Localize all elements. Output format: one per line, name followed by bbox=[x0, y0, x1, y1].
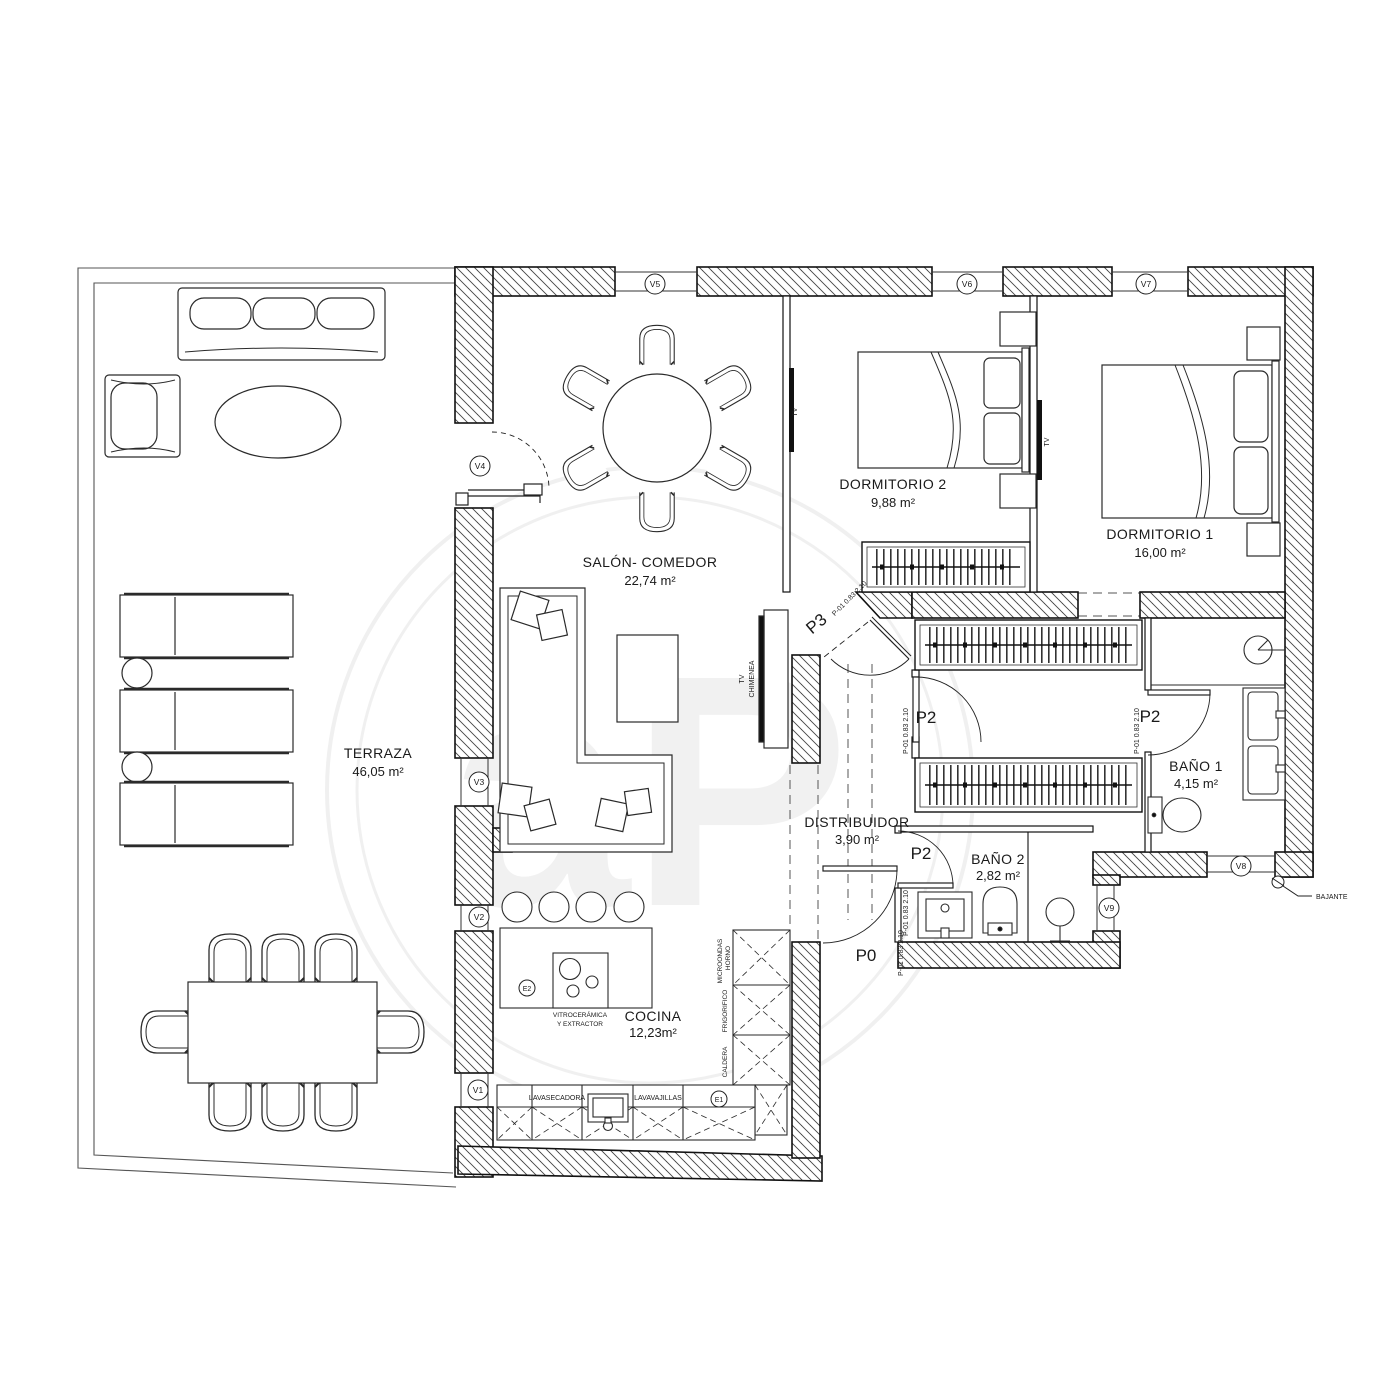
side-table bbox=[122, 752, 152, 782]
svg-text:V2: V2 bbox=[474, 912, 485, 922]
pillow bbox=[1234, 371, 1268, 442]
svg-text:V8: V8 bbox=[1236, 861, 1247, 871]
bar-stool bbox=[614, 892, 644, 922]
tap bbox=[1276, 711, 1285, 718]
bar-stool bbox=[502, 892, 532, 922]
svg-text:E2: E2 bbox=[523, 986, 532, 993]
tv-icon bbox=[1037, 400, 1042, 480]
window-badge-v2: V2 bbox=[469, 907, 489, 927]
room-area-cocina: 12,23m² bbox=[629, 1025, 677, 1040]
window-badge-v7: V7 bbox=[1136, 274, 1156, 294]
sink bbox=[918, 892, 972, 938]
svg-text:V5: V5 bbox=[650, 279, 661, 289]
shower-head-icon bbox=[1244, 636, 1285, 664]
room-area-salon: 22,74 m² bbox=[624, 573, 676, 588]
tv-chimenea-unit bbox=[759, 610, 788, 748]
svg-text:V7: V7 bbox=[1141, 279, 1152, 289]
window-badge-v9: V9 bbox=[1099, 898, 1119, 918]
window-badge-v5: V5 bbox=[645, 274, 665, 294]
nightstand bbox=[1000, 312, 1036, 346]
window-badge-v3: V3 bbox=[469, 772, 489, 792]
round-dining-table bbox=[558, 325, 755, 531]
svg-text:V3: V3 bbox=[474, 777, 485, 787]
wardrobes bbox=[862, 542, 1142, 812]
terraza-furniture bbox=[105, 288, 424, 1131]
bajante-callout: BAJANTE bbox=[1272, 876, 1348, 901]
dim-p0: P-01 0.83 2.10 bbox=[898, 930, 905, 976]
room-label-terraza: TERRAZA bbox=[344, 745, 412, 761]
room-area-bano2: 2,82 m² bbox=[976, 868, 1021, 883]
room-label-cocina: COCINA bbox=[625, 1008, 682, 1024]
tall-cabinet bbox=[733, 930, 790, 1085]
svg-text:V1: V1 bbox=[473, 1085, 484, 1095]
bano1-fixtures bbox=[1148, 636, 1285, 833]
room-label-distribuidor: DISTRIBUIDOR bbox=[804, 814, 909, 830]
chimenea-label: CHIMENEA bbox=[749, 660, 756, 697]
vitroceramica-label-1: VITROCERÁMICA bbox=[553, 1010, 608, 1019]
nightstand bbox=[1247, 327, 1280, 360]
room-area-dormitorio1: 16,00 m² bbox=[1134, 545, 1186, 560]
dim-p2-hall: P-01 0.83 2.10 bbox=[903, 708, 910, 754]
wardrobe-distribuidor bbox=[915, 758, 1142, 812]
bar-stool bbox=[539, 892, 569, 922]
oval-table bbox=[215, 386, 341, 458]
vitroceramica-label-2: Y EXTRACTOR bbox=[557, 1021, 603, 1028]
frigorifico-label: FRIGORIFICO bbox=[722, 990, 729, 1033]
tv-label-dorm1: TV bbox=[1044, 437, 1051, 446]
sun-lounger bbox=[120, 782, 293, 846]
room-label-bano2: BAÑO 2 bbox=[971, 851, 1025, 867]
coffee-table bbox=[617, 635, 678, 722]
corner-cabinet bbox=[755, 1085, 787, 1135]
room-area-distribuidor: 3,90 m² bbox=[835, 832, 880, 847]
tv-label-salon: TV bbox=[739, 674, 746, 683]
tv-label-dorm2: TV bbox=[792, 407, 799, 416]
dim-p2-bano1: P-01 0.83 2.10 bbox=[1134, 708, 1141, 754]
window-badge-v4: V4 bbox=[470, 456, 490, 476]
cooktop bbox=[553, 953, 608, 1008]
pillow bbox=[984, 358, 1020, 408]
dormitorio1-furniture bbox=[1037, 327, 1280, 556]
room-area-terraza: 46,05 m² bbox=[352, 764, 404, 779]
dim-p2-bano2: P-01 0.83 2.10 bbox=[903, 890, 910, 936]
floorplan-page: aP bbox=[0, 0, 1400, 1400]
nightstand bbox=[1247, 523, 1280, 556]
room-area-dormitorio2: 9,88 m² bbox=[871, 495, 916, 510]
room-label-dormitorio2: DORMITORIO 2 bbox=[839, 476, 946, 492]
headboard bbox=[1022, 348, 1029, 472]
sink bbox=[1248, 692, 1278, 740]
equipment-badge-e1: E1 bbox=[711, 1091, 727, 1107]
equipment-badge-e2: E2 bbox=[519, 980, 535, 996]
room-label-dormitorio1: DORMITORIO 1 bbox=[1106, 526, 1213, 542]
outdoor-dining-table bbox=[141, 934, 424, 1131]
lavasecadora-label: LAVASECADORA bbox=[529, 1095, 585, 1102]
tap bbox=[1276, 765, 1285, 772]
svg-text:E1: E1 bbox=[715, 1097, 724, 1104]
window-badge-v8: V8 bbox=[1231, 856, 1251, 876]
door-label-p2-bano1: P2 bbox=[1140, 707, 1161, 726]
sun-lounger bbox=[120, 594, 293, 658]
bar-stool bbox=[576, 892, 606, 922]
window-badge-v6: V6 bbox=[957, 274, 977, 294]
microondas-label: MICROONDAS bbox=[717, 938, 724, 983]
sink bbox=[1248, 746, 1278, 794]
window-badge-v1: V1 bbox=[468, 1080, 488, 1100]
door-label-p0: P0 bbox=[856, 946, 877, 965]
outdoor-sofa bbox=[178, 288, 385, 360]
side-table bbox=[122, 658, 152, 688]
caldera-label: CALDERA bbox=[722, 1046, 729, 1077]
svg-text:V4: V4 bbox=[475, 461, 486, 471]
wardrobe-dorm2 bbox=[862, 542, 1030, 592]
headboard bbox=[1272, 361, 1279, 522]
pillow bbox=[984, 413, 1020, 464]
toilet bbox=[983, 887, 1017, 935]
sun-lounger bbox=[120, 689, 293, 753]
door-label-p2-hall: P2 bbox=[916, 708, 937, 727]
bano2-fixtures bbox=[918, 887, 1074, 941]
door-label-p2-bano2: P2 bbox=[911, 844, 932, 863]
room-label-bano1: BAÑO 1 bbox=[1169, 758, 1223, 774]
pillow bbox=[1234, 447, 1268, 514]
horno-label: HORNO bbox=[725, 946, 732, 970]
room-area-bano1: 4,15 m² bbox=[1174, 776, 1219, 791]
toilet bbox=[1148, 797, 1201, 833]
shower-head-icon bbox=[1046, 898, 1074, 941]
nightstand bbox=[1000, 474, 1036, 508]
lavavajillas-label: LAVAVAJILLAS bbox=[634, 1095, 682, 1102]
floorplan-svg: aP bbox=[0, 0, 1400, 1400]
svg-text:V9: V9 bbox=[1104, 903, 1115, 913]
room-label-salon: SALÓN- COMEDOR bbox=[583, 554, 718, 570]
bajante-label: BAJANTE bbox=[1316, 894, 1348, 901]
svg-text:V6: V6 bbox=[962, 279, 973, 289]
outdoor-armchair bbox=[105, 375, 180, 457]
wardrobe-hall-top bbox=[915, 620, 1142, 670]
